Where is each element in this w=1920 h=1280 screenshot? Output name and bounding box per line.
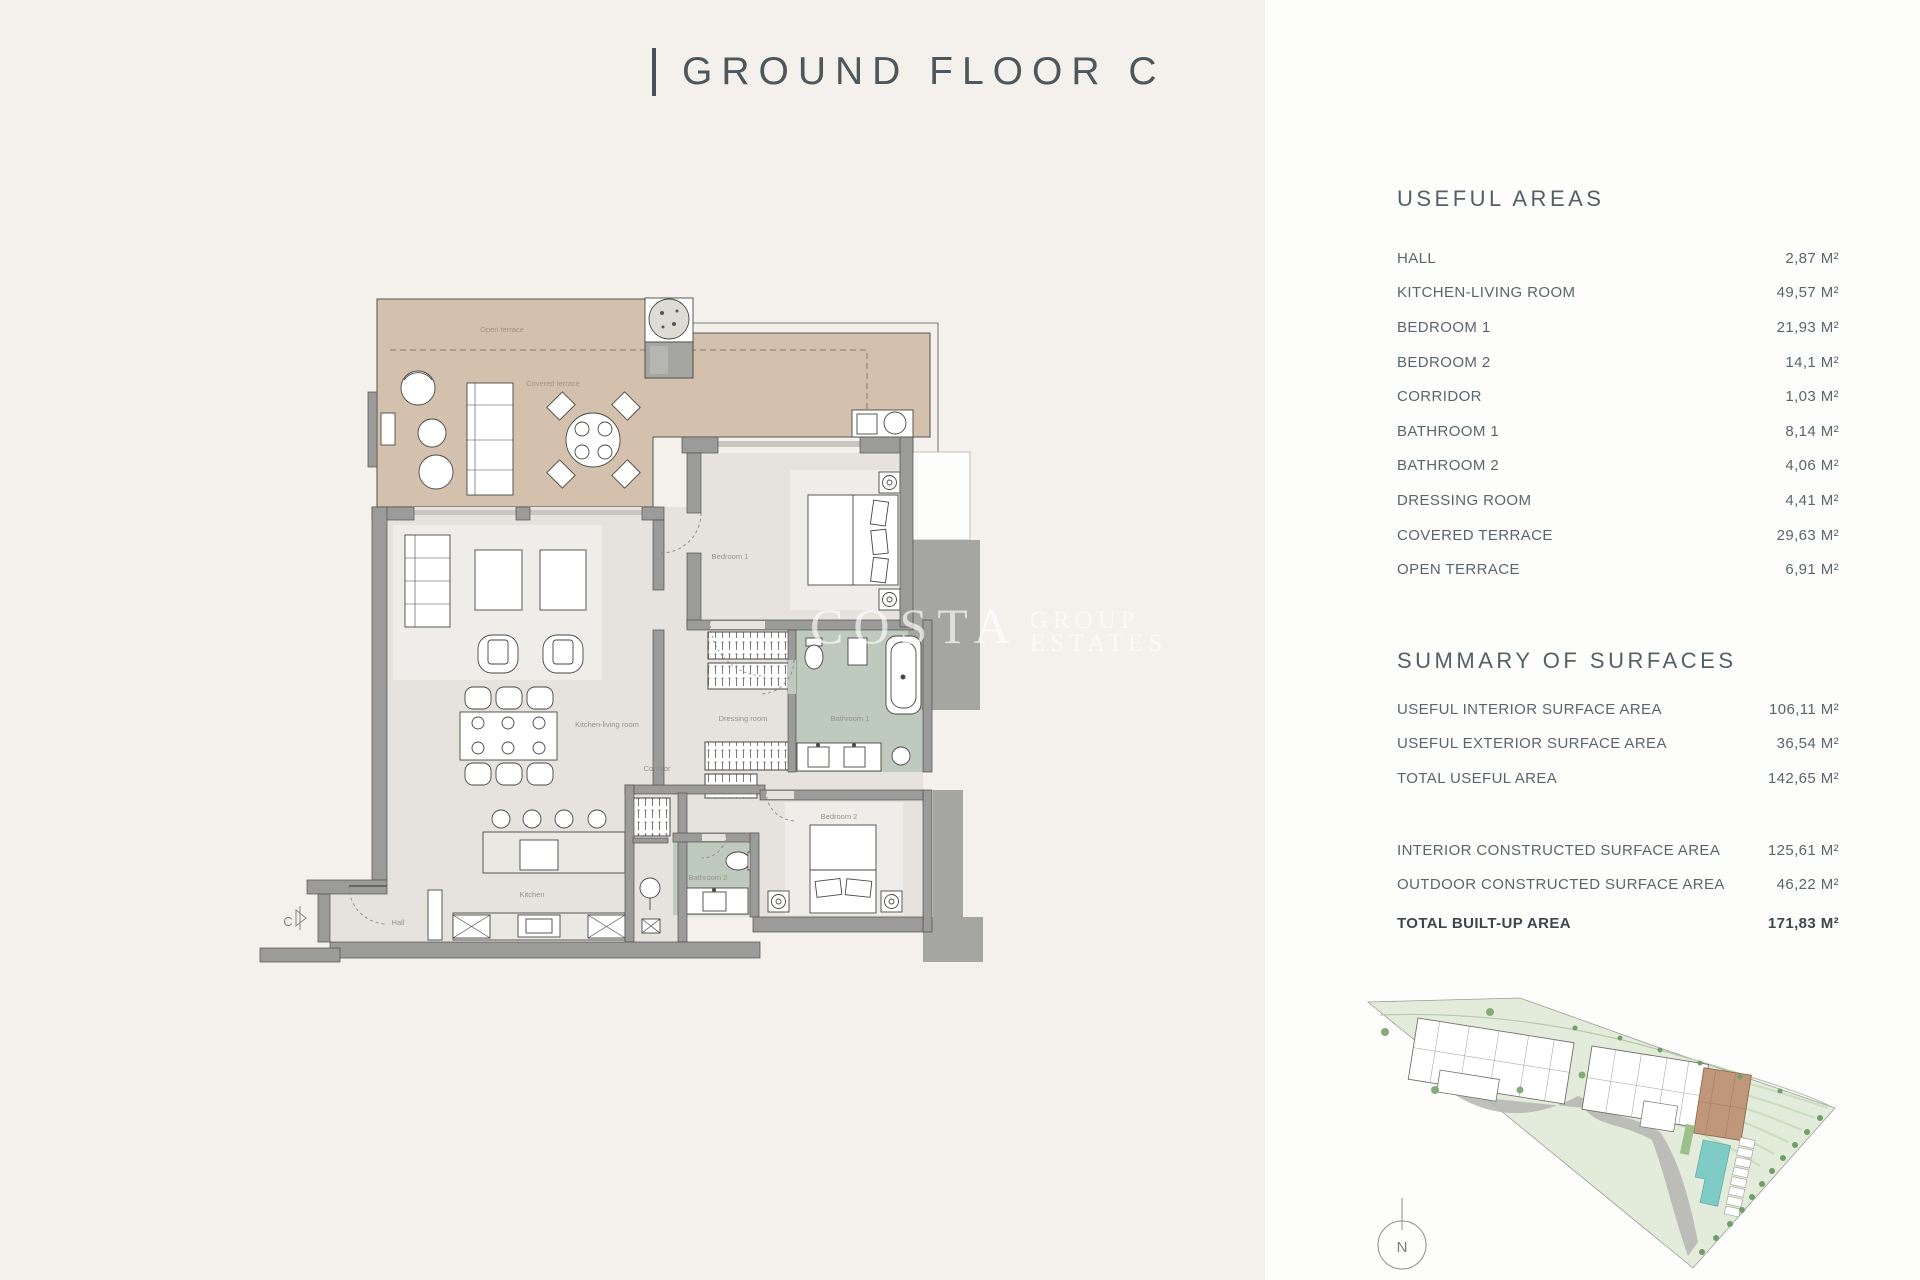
outdoor-sofa	[467, 383, 513, 495]
summary-row-label: INTERIOR CONSTRUCTED SURFACE AREA	[1397, 842, 1720, 859]
ceiling-fixture-icon	[879, 472, 900, 493]
compass-north-label: N	[1397, 1239, 1408, 1256]
label-bedroom2: Bedroom 2	[821, 812, 858, 821]
watermark-line1: GROUP	[1030, 609, 1167, 632]
area-row: BATHROOM 2 4,06 M²	[1397, 449, 1839, 484]
bed2	[810, 825, 876, 913]
area-row-value: 8,14 M²	[1785, 423, 1839, 440]
useful-areas-table: HALL 2,87 M² KITCHEN-LIVING ROOM 49,57 M…	[1397, 241, 1839, 587]
compass: N	[1378, 1198, 1426, 1269]
pillow	[871, 529, 888, 554]
total-built-up-label: TOTAL BUILT-UP AREA	[1397, 915, 1571, 932]
bbq-counter	[852, 410, 913, 437]
area-row-label: BEDROOM 2	[1397, 354, 1491, 371]
pouf	[418, 419, 446, 447]
lamp-icon	[640, 878, 660, 898]
label-hall: Hall	[392, 918, 405, 927]
site-plan: N	[1360, 990, 1840, 1280]
summary-row-value: 106,11 M²	[1769, 701, 1839, 718]
area-row-value: 4,41 M²	[1785, 492, 1839, 509]
kitchen-counter	[453, 913, 625, 940]
ceiling-fixture-icon	[881, 891, 902, 912]
area-row-label: DRESSING ROOM	[1397, 492, 1531, 509]
area-row-value: 14,1 M²	[1785, 354, 1839, 371]
area-row-label: HALL	[1397, 250, 1436, 267]
label-dressing-room: Dressing room	[719, 714, 768, 723]
area-row-label: KITCHEN-LIVING ROOM	[1397, 284, 1575, 301]
area-row-value: 2,87 M²	[1785, 250, 1839, 267]
area-row-value: 49,57 M²	[1777, 284, 1839, 301]
area-row-label: CORRIDOR	[1397, 388, 1482, 405]
summary-row-label: USEFUL INTERIOR SURFACE AREA	[1397, 701, 1662, 718]
summary-row: OUTDOOR CONSTRUCTED SURFACE AREA 46,22 M…	[1397, 868, 1839, 903]
dining-set	[460, 687, 557, 785]
area-row: CORRIDOR 1,03 M²	[1397, 379, 1839, 414]
pouf	[419, 455, 453, 489]
toilet-icon	[805, 645, 823, 669]
label-bathroom2: Bathroom 2	[689, 873, 728, 882]
label-kitchen-living: Kitchen-living room	[575, 720, 639, 729]
ceiling-fixture-icon	[879, 589, 900, 610]
area-row: KITCHEN-LIVING ROOM 49,57 M²	[1397, 276, 1839, 311]
summary-row-label: OUTDOOR CONSTRUCTED SURFACE AREA	[1397, 876, 1725, 893]
summary-row: USEFUL INTERIOR SURFACE AREA 106,11 M²	[1397, 692, 1839, 727]
summary-heading: SUMMARY OF SURFACES	[1397, 648, 1737, 674]
ceiling-fixture-icon	[768, 891, 789, 912]
area-row: DRESSING ROOM 4,41 M²	[1397, 483, 1839, 518]
summary-row-value: 125,61 M²	[1768, 842, 1839, 859]
summary-row: TOTAL USEFUL AREA 142,65 M²	[1397, 761, 1839, 796]
pillow	[845, 879, 872, 898]
page-title-text: GROUND FLOOR C	[682, 50, 1166, 94]
entry-marker-label: C	[283, 914, 292, 929]
entry-arrow-icon	[296, 910, 306, 926]
tree-icon	[649, 299, 689, 339]
title-separator-bar	[652, 48, 656, 96]
area-row-value: 1,03 M²	[1785, 388, 1839, 405]
pillow	[815, 878, 842, 897]
total-built-up-row: TOTAL BUILT-UP AREA 171,83 M²	[1397, 906, 1839, 941]
brochure-page: GROUND FLOOR C USEFUL AREAS HALL 2,87 M²…	[0, 0, 1920, 1280]
highlighted-unit	[1694, 1068, 1752, 1141]
summary-row-label: TOTAL USEFUL AREA	[1397, 770, 1557, 787]
watermark-line2: ESTATES	[1030, 632, 1167, 655]
label-open-terrace: Open terrace	[480, 325, 524, 334]
area-row-value: 21,93 M²	[1777, 319, 1839, 336]
summary-useful-table: USEFUL INTERIOR SURFACE AREA 106,11 M² U…	[1397, 692, 1839, 796]
summary-row-value: 36,54 M²	[1777, 735, 1839, 752]
area-row: BEDROOM 2 14,1 M²	[1397, 345, 1839, 380]
lounge-chair	[401, 371, 435, 405]
area-row: BEDROOM 1 21,93 M²	[1397, 310, 1839, 345]
area-row-value: 4,06 M²	[1785, 457, 1839, 474]
area-row-label: COVERED TERRACE	[1397, 527, 1553, 544]
summary-row-label: USEFUL EXTERIOR SURFACE AREA	[1397, 735, 1667, 752]
pillow	[871, 557, 889, 583]
useful-areas-heading: USEFUL AREAS	[1397, 186, 1604, 212]
area-row-label: OPEN TERRACE	[1397, 561, 1520, 578]
terrace-wall-planter	[381, 413, 395, 445]
coffee-table	[475, 550, 522, 610]
label-corridor: Corridor	[643, 764, 671, 773]
area-row: OPEN TERRACE 6,91 M²	[1397, 552, 1839, 587]
summary-row: USEFUL EXTERIOR SURFACE AREA 36,54 M²	[1397, 727, 1839, 762]
label-bedroom1: Bedroom 1	[712, 552, 749, 561]
area-row: BATHROOM 1 8,14 M²	[1397, 414, 1839, 449]
pillow	[870, 500, 888, 526]
area-row-label: BATHROOM 1	[1397, 423, 1499, 440]
label-covered-terrace: Covered terrace	[526, 379, 580, 388]
total-built-up-value: 171,83 M²	[1768, 915, 1839, 932]
area-row-value: 6,91 M²	[1785, 561, 1839, 578]
area-row: COVERED TERRACE 29,63 M²	[1397, 518, 1839, 553]
area-row-label: BEDROOM 1	[1397, 319, 1491, 336]
area-row: HALL 2,87 M²	[1397, 241, 1839, 276]
label-kitchen: Kitchen	[519, 890, 544, 899]
shower-icon	[848, 638, 867, 665]
entry-closet	[428, 890, 442, 940]
summary-row: INTERIOR CONSTRUCTED SURFACE AREA 125,61…	[1397, 833, 1839, 868]
floor-plan: Open terrace Covered terrace Kitchen-liv…	[250, 280, 990, 980]
toilet-icon	[726, 852, 750, 870]
label-bathroom1: Bathroom 1	[831, 714, 870, 723]
area-row-label: BATHROOM 2	[1397, 457, 1499, 474]
summary-constructed-table: INTERIOR CONSTRUCTED SURFACE AREA 125,61…	[1397, 833, 1839, 902]
summary-row-value: 46,22 M²	[1777, 876, 1839, 893]
bath-plant	[892, 747, 910, 765]
page-title: GROUND FLOOR C	[652, 48, 1166, 96]
coffee-table	[540, 550, 586, 610]
summary-row-value: 142,65 M²	[1768, 770, 1839, 787]
area-row-value: 29,63 M²	[1777, 527, 1839, 544]
total-built-up-row-wrap: TOTAL BUILT-UP AREA 171,83 M²	[1397, 906, 1839, 941]
